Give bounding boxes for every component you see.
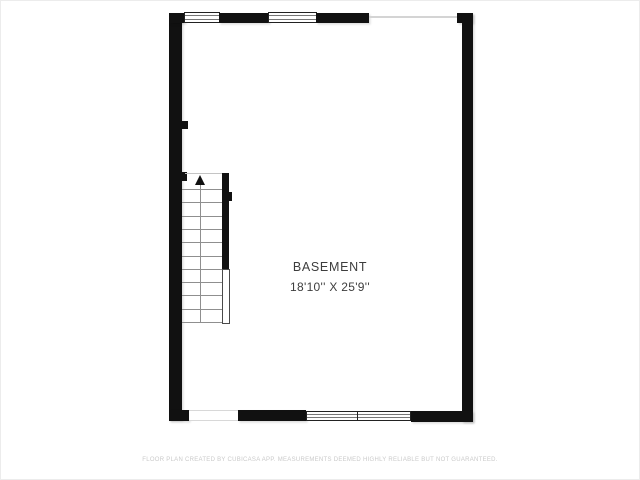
window bbox=[357, 411, 411, 421]
wall-bottom-segment bbox=[169, 410, 189, 421]
window bbox=[184, 12, 220, 23]
stair-tread bbox=[182, 309, 222, 310]
doorway-opening bbox=[189, 410, 238, 421]
room-label: BASEMENT bbox=[230, 260, 430, 274]
stair-side-wall-lower bbox=[222, 269, 230, 324]
stair-tread bbox=[182, 282, 222, 283]
window bbox=[306, 411, 358, 421]
stair-treads bbox=[182, 189, 222, 329]
room-dimensions: 18'10'' X 25'9'' bbox=[230, 280, 430, 294]
stairs-up-arrow-icon bbox=[195, 175, 205, 185]
wall-top-segment bbox=[316, 13, 369, 23]
wall-top-segment bbox=[169, 13, 185, 23]
wall-stub bbox=[229, 192, 232, 201]
stair-tread bbox=[182, 322, 222, 323]
stair-top-line bbox=[185, 173, 222, 174]
stair-side-wall bbox=[222, 173, 229, 270]
stair-tread bbox=[182, 229, 222, 230]
wall-bottom-segment bbox=[411, 411, 473, 422]
stair-tread bbox=[182, 189, 222, 190]
stair-direction-line bbox=[200, 185, 201, 323]
wall-stub bbox=[182, 121, 188, 129]
stair-tread bbox=[182, 216, 222, 217]
stair-tread bbox=[182, 242, 222, 243]
wall-left bbox=[169, 13, 182, 420]
stair-tread bbox=[182, 295, 222, 296]
floor-plan-canvas: BASEMENT 18'10'' X 25'9'' FLOOR PLAN CRE… bbox=[0, 0, 640, 480]
stair-tread bbox=[182, 256, 222, 257]
wall-bottom-segment bbox=[238, 410, 306, 421]
wall-opening-line bbox=[369, 16, 457, 18]
stair-tread bbox=[182, 269, 222, 270]
wall-right bbox=[462, 13, 473, 422]
window bbox=[268, 12, 317, 23]
disclaimer-text: FLOOR PLAN CREATED BY CUBICASA APP. MEAS… bbox=[1, 457, 639, 463]
wall-top-segment bbox=[219, 13, 269, 23]
stair-tread bbox=[182, 202, 222, 203]
